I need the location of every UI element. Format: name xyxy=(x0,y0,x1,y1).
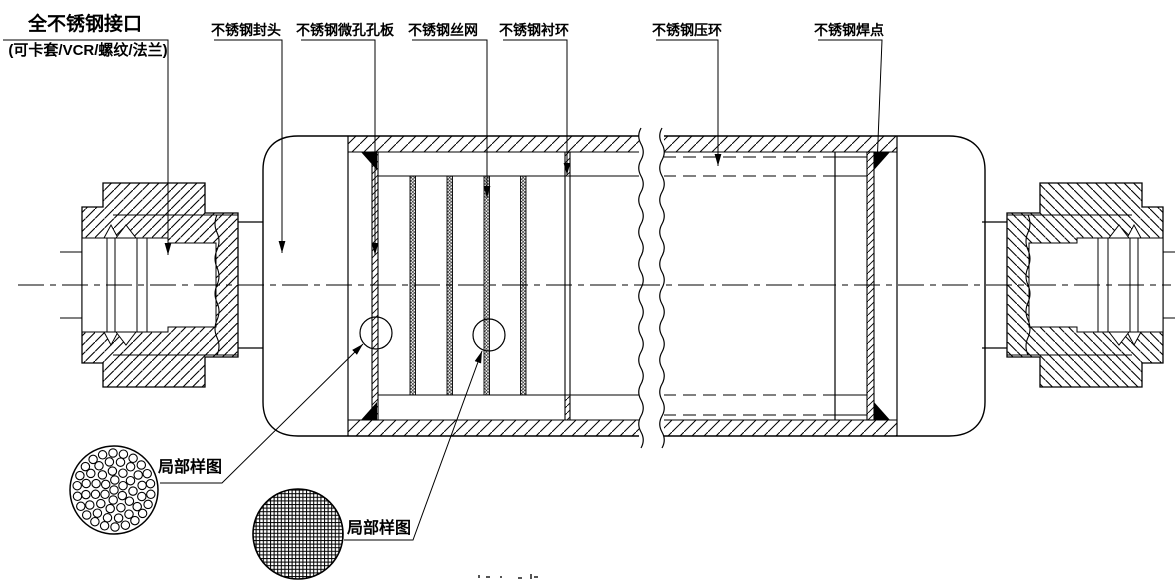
liner-ring-end xyxy=(565,152,570,420)
technical-drawing-canvas: 全不锈钢接口 (可卡套/VCR/螺纹/法兰) 不锈钢封头 不锈钢微孔孔板 不锈钢… xyxy=(0,0,1175,580)
callout-head: 不锈钢封头 xyxy=(211,22,281,38)
press-ring-seat-lines xyxy=(835,157,867,415)
callout-detail-sample-left: 局部样图 xyxy=(158,459,222,477)
callout-weld-spot: 不锈钢焊点 xyxy=(814,22,884,38)
callout-micro-perforated-plate: 不锈钢微孔孔板 xyxy=(296,22,394,38)
filter-cross-section-drawing xyxy=(0,0,1175,580)
weld-spots xyxy=(361,152,890,420)
break-mask xyxy=(639,127,664,448)
mesh-sample xyxy=(253,489,343,579)
shell-inner-edges xyxy=(348,152,897,420)
dome-joint-lines xyxy=(348,136,897,436)
hidden-bore-lines xyxy=(663,157,835,415)
perforated-plate-sample xyxy=(70,446,158,534)
callout-liner-ring: 不锈钢衬环 xyxy=(499,22,569,38)
callout-press-ring: 不锈钢压环 xyxy=(652,22,722,38)
callout-port-subtitle: (可卡套/VCR/螺纹/法兰) xyxy=(0,42,176,59)
cropped-caption-fragments xyxy=(478,574,538,579)
callout-port-title: 全不锈钢接口 xyxy=(2,14,168,36)
callout-wire-mesh: 不锈钢丝网 xyxy=(408,22,478,38)
leader-liner xyxy=(503,40,567,175)
vessel-shell-outline xyxy=(263,136,985,436)
shell-hatch-bottom xyxy=(348,420,897,436)
leader-mesh xyxy=(412,40,487,198)
vessel-body xyxy=(263,136,985,436)
perforated-plate-right xyxy=(867,152,874,420)
shell-hatch-top xyxy=(348,136,897,152)
callout-detail-sample-right: 局部样图 xyxy=(347,520,411,538)
